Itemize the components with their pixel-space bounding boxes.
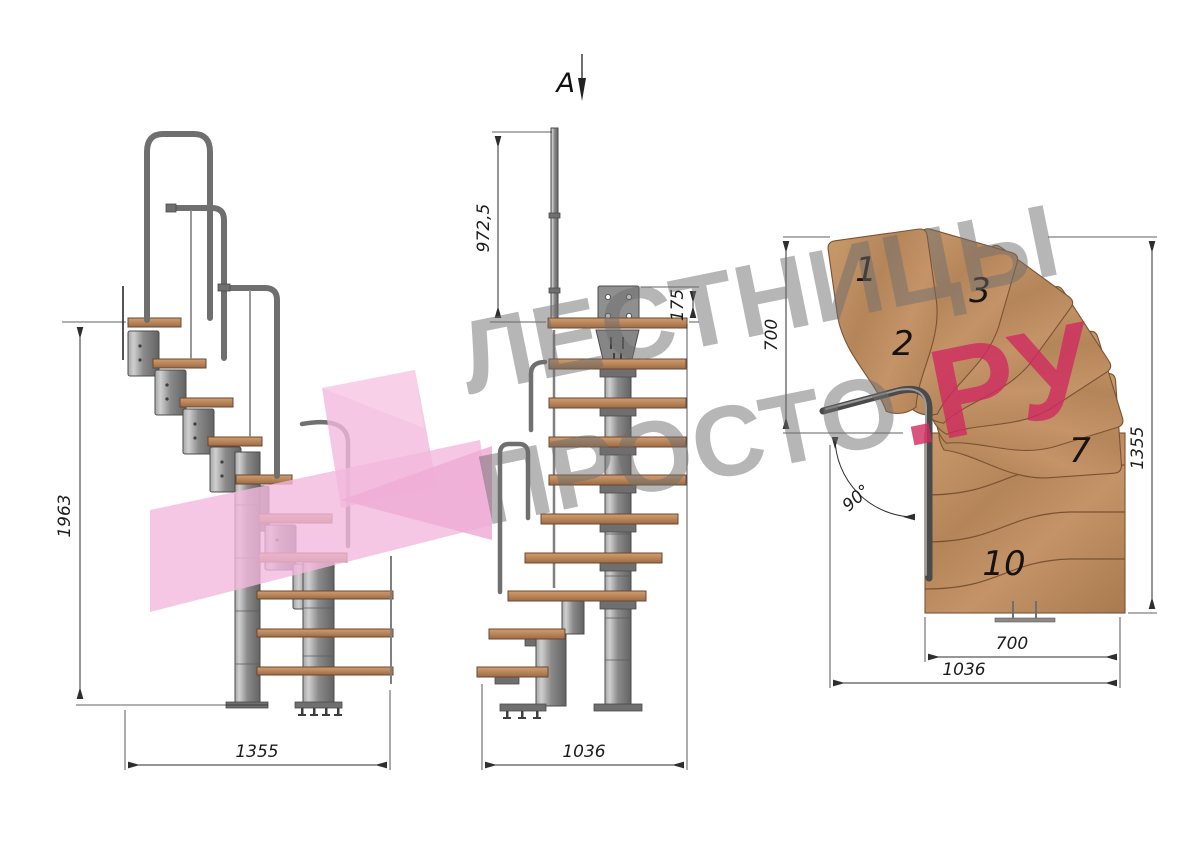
column-base-plate: [594, 704, 642, 711]
tread-number-1: 1: [855, 250, 877, 290]
handrail-loop: [147, 134, 210, 320]
technical-drawing: 1963 1355 A: [0, 0, 1200, 849]
front-elevation-view: A: [474, 54, 699, 770]
front-staircase: [477, 128, 687, 719]
dim-rail-height: 972,5: [474, 204, 494, 253]
anchor-bolts: [298, 708, 342, 716]
dim-front-width: 1036: [562, 742, 605, 762]
tread-number-7: 7: [1069, 431, 1091, 471]
dim-lower-run-width: 700: [996, 634, 1028, 654]
dim-total-run: 1355: [235, 742, 278, 762]
dim-total-depth: 1355: [1128, 426, 1148, 469]
dim-turn-angle: 90°: [839, 481, 875, 516]
plan-treads: 1 2 3 7 10: [823, 227, 1125, 622]
plan-view: 1 2 3 7 10 700 1355 700 1036: [762, 227, 1157, 688]
dim-plan-total-width: 1036: [942, 660, 985, 680]
section-marker: A: [555, 54, 586, 101]
plan-handrail-highlight: [826, 389, 926, 575]
section-label: A: [555, 68, 575, 99]
tread-number-10: 10: [982, 544, 1025, 584]
dim-upper-run-depth: 700: [762, 319, 782, 351]
drawing-canvas: 1963 1355 A: [0, 0, 1200, 849]
rail-post: [551, 128, 558, 324]
section-arrow: [578, 78, 586, 101]
dim-total-height: 1963: [55, 494, 75, 537]
rail-clamp: [166, 204, 176, 212]
handrail-segment-2: [171, 208, 224, 358]
dim-top-bracket: 175: [668, 289, 688, 321]
anchor-bolts: [503, 711, 541, 719]
base-plate-b: [295, 702, 342, 708]
tread-number-2: 2: [892, 324, 914, 364]
left-rail-loop: [500, 444, 528, 592]
lower-base-plate: [500, 704, 546, 711]
plan-handrail: [823, 389, 929, 578]
central-column: [605, 366, 631, 706]
left-rail-elbow: [531, 362, 545, 430]
tread-number-3: 3: [969, 271, 991, 311]
rail-clamp: [218, 284, 230, 291]
